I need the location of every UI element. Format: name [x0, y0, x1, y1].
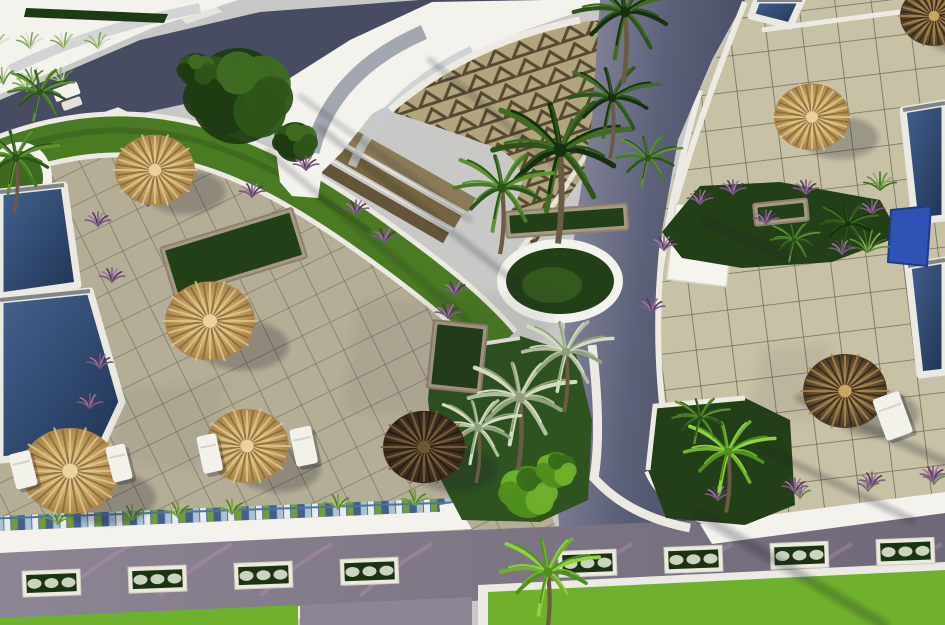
road-planter-box: [340, 557, 399, 585]
road-planter-box: [128, 565, 187, 593]
swimming-pool: [0, 185, 78, 296]
road-planter-box: [664, 545, 723, 573]
road-planter-box: [234, 561, 293, 589]
right-lower-bed: [648, 398, 795, 525]
road-planter-box: [876, 537, 935, 565]
render-canvas: [0, 0, 945, 625]
water-feature-wall: [888, 206, 931, 266]
resort-aerial-render: [0, 0, 945, 625]
road-planter-box: [22, 569, 81, 597]
